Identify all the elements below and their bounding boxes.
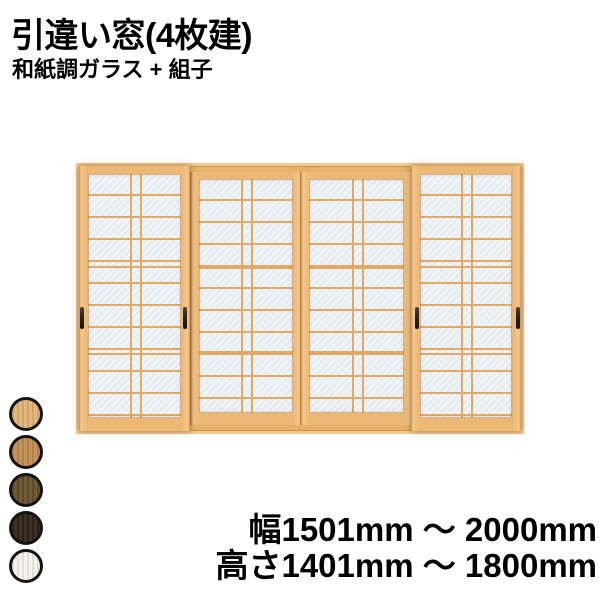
width-range: 幅1501mm ～ 2000mm [215, 512, 597, 548]
color-swatch-medium-wood[interactable] [9, 435, 43, 469]
product-image-page: { "header": { "title": "引違い窓(4枚建)", "sub… [0, 0, 600, 600]
window-glass-4 [420, 174, 513, 418]
color-swatch-dark-olive-wood[interactable] [9, 473, 43, 507]
window-glass-3 [309, 179, 404, 413]
window-panel-1 [79, 166, 190, 431]
window-glass-2 [199, 179, 294, 413]
window-illustration [76, 163, 524, 434]
size-specs: 幅1501mm ～ 2000mm 高さ1401mm ～ 1800mm [215, 512, 597, 584]
height-range: 高さ1401mm ～ 1800mm [215, 548, 597, 584]
color-swatch-white[interactable] [9, 549, 43, 583]
color-swatch-dark-brown[interactable] [9, 511, 43, 545]
window-handle-2 [183, 307, 187, 329]
window-panel-4 [411, 166, 522, 431]
window-handle-3 [415, 307, 419, 329]
product-subtitle: 和紙調ガラス + 組子 [12, 52, 213, 84]
color-swatch-light-wood[interactable] [9, 397, 43, 431]
product-title: 引違い窓(4枚建) [11, 8, 252, 57]
color-swatch-list [9, 397, 43, 583]
window-panel-3 [300, 172, 413, 425]
window-glass-1 [88, 174, 181, 418]
window-panel-2 [190, 172, 303, 425]
window-handle-4 [516, 307, 520, 329]
window-handle-1 [80, 307, 84, 329]
